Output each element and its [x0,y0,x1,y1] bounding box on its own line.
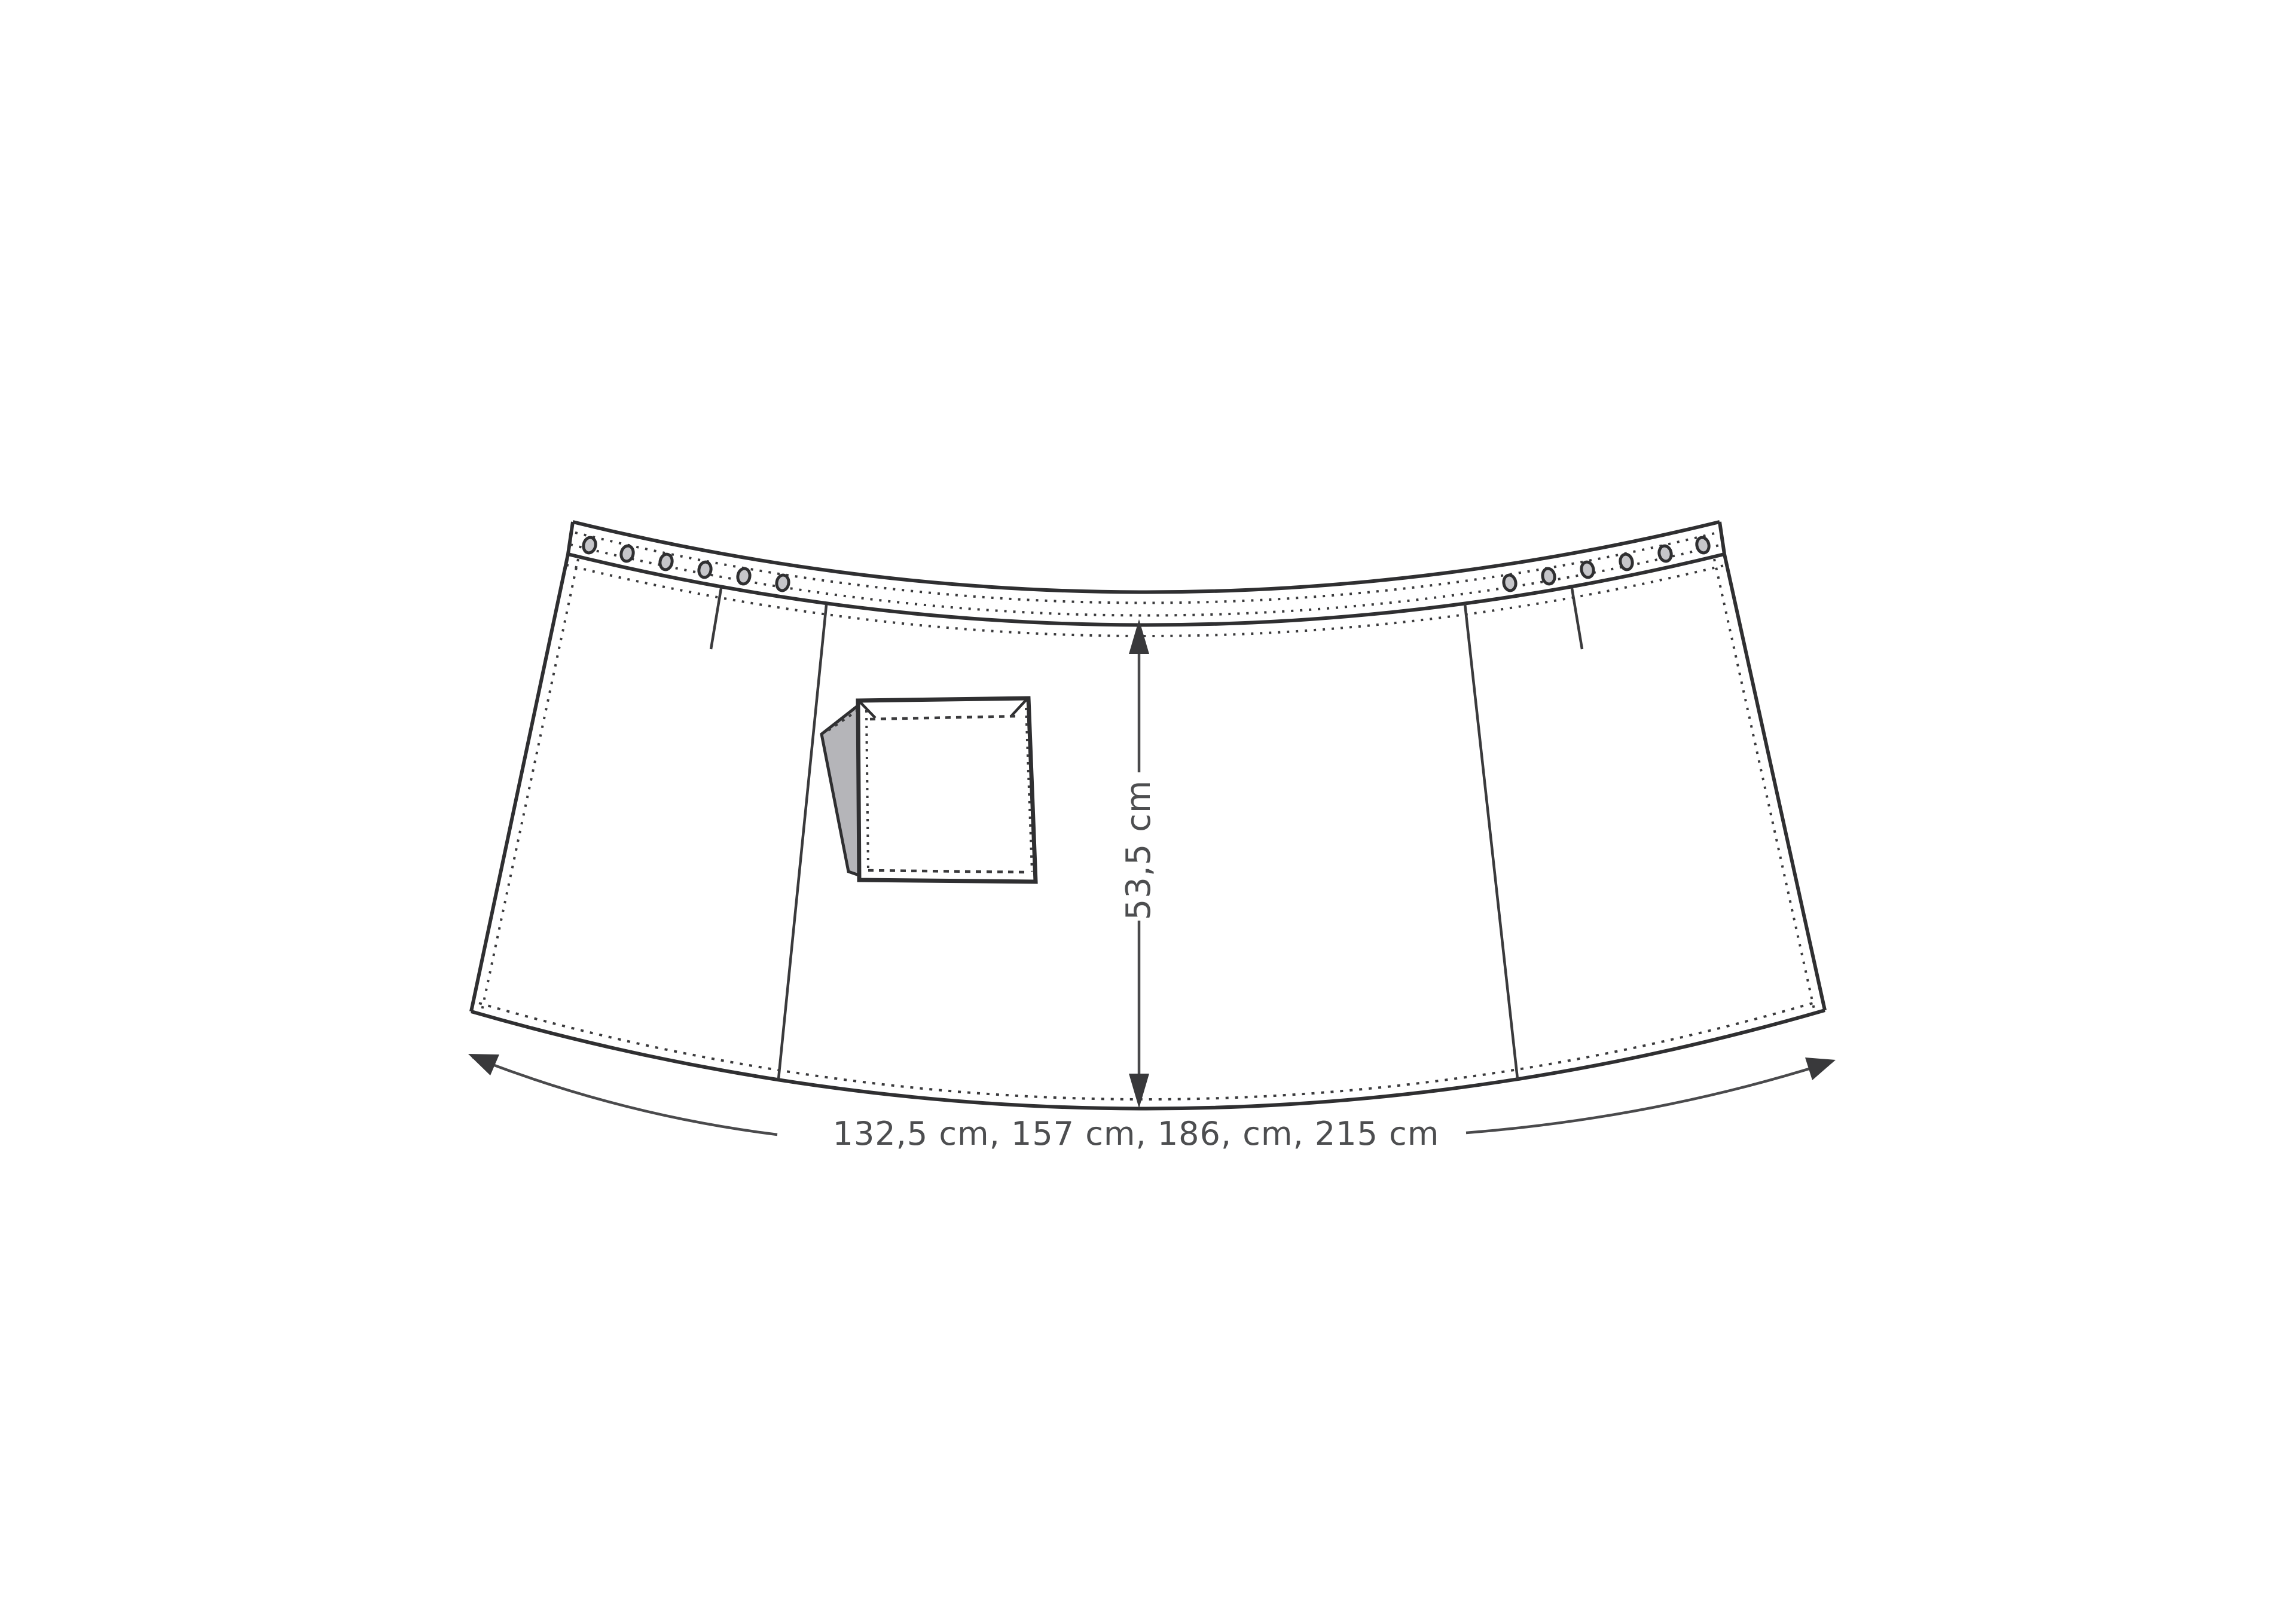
width-dimension-arc-left [472,1057,777,1135]
width-arrowhead-right-icon [1805,1057,1836,1080]
apron-pattern-page: 53,5 cm 132,5 cm, 157 cm, 186, cm, 215 c… [0,0,2296,1623]
eyelet [1657,545,1672,563]
right-seam-line [1465,604,1518,1079]
height-dimension-label: 53,5 cm [1119,780,1158,921]
eyelet [659,553,674,571]
body-hem-edge [471,1010,1825,1109]
waistband [568,522,1724,625]
eyelet [1695,536,1710,554]
left-edge-stitch-line [482,559,578,1010]
left-seam-line [778,605,826,1079]
pocket-front [858,698,1036,882]
width-dimension-label: 132,5 cm, 157 cm, 186, cm, 215 cm [833,1115,1440,1153]
waistband-right-end [1720,522,1724,554]
body-left-edge [471,554,568,1011]
apron-pattern-drawing: 53,5 cm 132,5 cm, 157 cm, 186, cm, 215 c… [0,0,2296,1623]
width-dimension-arc-right [1466,1062,1832,1133]
eyelet [582,536,597,554]
height-dimension: 53,5 cm [1119,619,1158,1108]
eyelet [698,561,713,578]
eyelet [1541,567,1556,585]
pocket-bottom-stitch-line [868,870,1026,872]
eyelet [1503,574,1517,592]
patch-pocket [822,698,1036,882]
waistband-bottom-edge [568,554,1724,625]
body-right-edge [1724,554,1825,1010]
eyelet [1580,561,1595,578]
waistband-left-end [568,522,573,554]
pocket-folded-flap [822,704,862,876]
height-arrowhead-down-icon [1129,1074,1149,1108]
hem-stitch-line [479,1002,1817,1099]
right-edge-stitch-line [1714,559,1814,1009]
right-notch-mark [1572,588,1582,649]
width-dimension: 132,5 cm, 157 cm, 186, cm, 215 cm [468,1054,1836,1153]
width-arrowhead-left-icon [468,1054,499,1075]
eyelet [775,574,790,592]
eyelet [737,567,751,585]
